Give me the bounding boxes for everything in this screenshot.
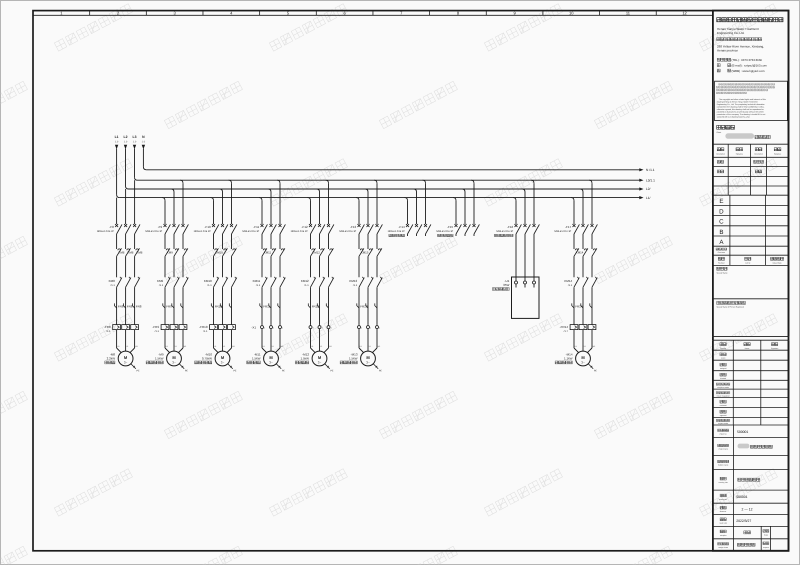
svg-text:3~: 3~ [366, 360, 370, 364]
svg-text:Client: Client [717, 131, 722, 134]
svg-text:W1: W1 [184, 345, 187, 348]
svg-text:FR8: FR8 [127, 305, 133, 309]
svg-text:-F13: -F13 [350, 225, 357, 229]
svg-text:1.5kW: 1.5kW [155, 357, 164, 361]
svg-text:U1: U1 [311, 345, 313, 348]
svg-text:U1: U1 [117, 345, 119, 348]
svg-text:KM9: KM9 [157, 279, 164, 283]
svg-text:NDB-6S D16 3P: NDB-6S D16 3P [291, 230, 308, 233]
svg-text:W1: W1 [232, 345, 235, 348]
svg-text:(E-mail) : xxtyscl@163.com: (E-mail) : xxtyscl@163.com [732, 64, 768, 68]
svg-text:/1.1: /1.1 [304, 284, 309, 287]
svg-text:U1: U1 [214, 345, 216, 348]
svg-text:L1: L1 [115, 135, 119, 139]
svg-text:/1.1: /1.1 [353, 284, 358, 287]
svg-text:V1: V1 [126, 345, 128, 348]
svg-text:KM8: KM8 [118, 251, 124, 255]
svg-text:KM13: KM13 [361, 251, 369, 255]
svg-text:NDB-6S D16 3P: NDB-6S D16 3P [339, 230, 356, 233]
svg-text:KM9: KM9 [167, 251, 173, 255]
svg-text:KM14: KM14 [564, 279, 572, 283]
svg-text:1.0: 1.0 [142, 140, 146, 143]
svg-text:N /1.1: N /1.1 [646, 168, 655, 172]
svg-text:500001: 500001 [736, 495, 747, 499]
svg-text:3~: 3~ [124, 360, 128, 364]
svg-text:V1: V1 [223, 345, 225, 348]
svg-text:-F9: -F9 [158, 225, 163, 229]
svg-text:2 — 12: 2 — 12 [742, 507, 753, 511]
svg-text:L2/: L2/ [646, 187, 651, 191]
svg-text:1.5kW: 1.5kW [300, 357, 309, 361]
svg-text:-F15: -F15 [447, 225, 454, 229]
svg-text:Position: Position [720, 347, 726, 350]
svg-text:V1: V1 [175, 345, 177, 348]
svg-text:-F8: -F8 [109, 225, 114, 229]
svg-text:NDB-6S D10 3P: NDB-6S D10 3P [554, 230, 571, 233]
svg-text:-F16: -F16 [507, 225, 514, 229]
svg-text:PE: PE [330, 369, 334, 372]
svg-text:KM12: KM12 [312, 251, 320, 255]
svg-text:drawing belong to Henan Tianyu: drawing belong to Henan Tianyu Water Tre… [717, 100, 758, 103]
svg-text:D: D [719, 208, 724, 215]
svg-text:V1: V1 [369, 345, 371, 348]
svg-text:KM10: KM10 [204, 279, 212, 283]
svg-text:V1: V1 [320, 345, 322, 348]
svg-text:3~: 3~ [269, 360, 273, 364]
svg-text:Description: Description [716, 153, 725, 156]
svg-text:/1.1: /1.1 [203, 330, 208, 333]
svg-text:L1/: L1/ [646, 196, 651, 200]
svg-text:-FR8: -FR8 [104, 325, 111, 329]
svg-text:Signature: Signature [774, 153, 781, 156]
svg-text:1.5kW: 1.5kW [252, 357, 261, 361]
svg-text:KM11: KM11 [253, 279, 261, 283]
svg-text:stamped with our drawing busin: stamped with our drawing business seal. [717, 116, 751, 119]
svg-text:W1: W1 [281, 345, 284, 348]
svg-text:W1: W1 [378, 345, 381, 348]
svg-text:-F17: -F17 [565, 225, 572, 229]
svg-text:KM13: KM13 [349, 279, 357, 283]
svg-text:Description: Description [754, 153, 763, 156]
svg-text:FR8: FR8 [118, 305, 124, 309]
svg-text:W1: W1 [135, 345, 138, 348]
svg-text:C: C [719, 219, 724, 226]
svg-text:NDB-6S D16 3P: NDB-6S D16 3P [436, 230, 453, 233]
svg-text:1.5kW: 1.5kW [349, 357, 358, 361]
svg-text:2022/3/27: 2022/3/27 [736, 519, 751, 523]
svg-text:Engineering Co., Ltd. The prop: Engineering Co., Ltd. The proprietary te… [717, 103, 765, 106]
svg-text:-FR9: -FR9 [152, 325, 159, 329]
svg-text:3~: 3~ [221, 360, 225, 364]
svg-text:NDB-6S D16 3P: NDB-6S D16 3P [496, 230, 513, 233]
svg-text:-F14: -F14 [399, 225, 406, 229]
svg-text:Issued Date: Issued Date [773, 262, 782, 265]
svg-text:FR8: FR8 [136, 305, 142, 309]
svg-text:W1: W1 [593, 345, 596, 348]
svg-text:E: E [719, 198, 723, 205]
svg-text:KM14: KM14 [576, 251, 584, 255]
svg-text:Name: Name [745, 347, 750, 350]
svg-text:provided or disclosed to any t: provided or disclosed to any third party… [717, 111, 764, 114]
svg-text:KM8: KM8 [127, 251, 133, 255]
svg-text:3~: 3~ [318, 360, 322, 364]
svg-text:NDB-6S D16 3P: NDB-6S D16 3P [388, 230, 405, 233]
svg-text:PE: PE [136, 369, 140, 372]
svg-text:NDB-6S D16 3P: NDB-6S D16 3P [194, 230, 211, 233]
svg-text:1.0: 1.0 [124, 140, 128, 143]
svg-text:35W: 35W [503, 283, 509, 287]
svg-text:(WEB) : www.hgtyscl.com: (WEB) : www.hgtyscl.com [732, 69, 766, 73]
svg-text:NDB-6S D16 3P: NDB-6S D16 3P [97, 230, 114, 233]
svg-text:KM8: KM8 [109, 279, 116, 283]
svg-text:FR9: FR9 [166, 305, 172, 309]
svg-text:permission of the company. The: permission of the company. The drawing i… [717, 113, 766, 116]
svg-text:L2: L2 [124, 135, 128, 139]
svg-text:V1: V1 [272, 345, 274, 348]
svg-text:Special Stamp Of Person Regist: Special Stamp Of Person Registered [717, 306, 745, 309]
svg-text:1.0: 1.0 [133, 140, 137, 143]
svg-text:NDB-6S D16 3P: NDB-6S D16 3P [145, 230, 162, 233]
svg-text:/1.7: /1.7 [564, 330, 569, 333]
svg-text:KM8: KM8 [136, 251, 142, 255]
svg-text:PE: PE [379, 369, 383, 372]
svg-text:/1.1: /1.1 [568, 284, 573, 287]
svg-text:-FR10: -FR10 [199, 325, 208, 329]
svg-text:/1.1: /1.1 [256, 284, 261, 287]
svg-text:/1.1: /1.1 [110, 284, 115, 287]
svg-text:U1: U1 [166, 345, 168, 348]
svg-text:0.75kW: 0.75kW [202, 357, 212, 361]
svg-text:-F10: -F10 [205, 225, 212, 229]
svg-text:W1: W1 [329, 345, 332, 348]
svg-text:B: B [719, 229, 723, 236]
svg-text:Revision: Revision [718, 262, 725, 265]
svg-text:-X1: -X1 [251, 325, 256, 329]
svg-text:U1: U1 [263, 345, 265, 348]
svg-text:KM11: KM11 [264, 251, 272, 255]
svg-text:10: 10 [569, 10, 574, 15]
svg-text:PE: PE [233, 369, 237, 372]
svg-text:PE: PE [594, 369, 598, 372]
svg-text:-F11: -F11 [253, 225, 259, 229]
svg-text:PE: PE [185, 369, 189, 372]
svg-text:Engineering Co.,Ltd.: Engineering Co.,Ltd. [717, 31, 745, 35]
svg-text:(TEL) : 0373 3733 8666: (TEL) : 0373 3733 8666 [732, 58, 763, 62]
svg-text:Henan province: Henan province [717, 49, 738, 53]
svg-text:V1: V1 [584, 345, 586, 348]
svg-text:/1.1: /1.1 [155, 330, 160, 333]
svg-text:/1.1: /1.1 [207, 284, 212, 287]
svg-text:Signature: Signature [771, 347, 778, 350]
svg-text:U1: U1 [575, 345, 577, 348]
svg-text:1.1kW: 1.1kW [564, 357, 573, 361]
svg-text:2.2kW: 2.2kW [107, 357, 116, 361]
svg-text:NDB-6S D16 3P: NDB-6S D16 3P [242, 230, 259, 233]
svg-text:The copyright and other relate: The copyright and other related rights a… [719, 98, 766, 101]
svg-text:/1.1: /1.1 [159, 284, 164, 287]
svg-text:Signature: Signature [736, 153, 743, 156]
svg-text:-FR14: -FR14 [560, 325, 569, 329]
svg-text:KM12: KM12 [301, 279, 309, 283]
svg-text:1.0: 1.0 [115, 140, 119, 143]
svg-text:L3/1.1: L3/1.1 [646, 178, 655, 182]
svg-text:contained in the drawing shall: contained in the drawing shall be kept c… [717, 105, 764, 108]
svg-text:U1: U1 [360, 345, 362, 348]
svg-text:KM10: KM10 [215, 251, 223, 255]
svg-text:Job let: Job let [745, 262, 751, 265]
svg-text:3~: 3~ [172, 360, 176, 364]
svg-text:-F12: -F12 [302, 225, 309, 229]
svg-text:12: 12 [682, 10, 687, 15]
svg-text:3~: 3~ [581, 360, 585, 364]
svg-text:PE: PE [282, 369, 286, 372]
svg-text:/1.1: /1.1 [106, 330, 111, 333]
svg-text:Special Stamp: Special Stamp [717, 271, 728, 274]
svg-text:500001: 500001 [737, 430, 748, 434]
svg-text:otherwise agreed, this drawing: otherwise agreed, this drawing shall not… [717, 108, 764, 111]
svg-text:L3: L3 [133, 135, 137, 139]
